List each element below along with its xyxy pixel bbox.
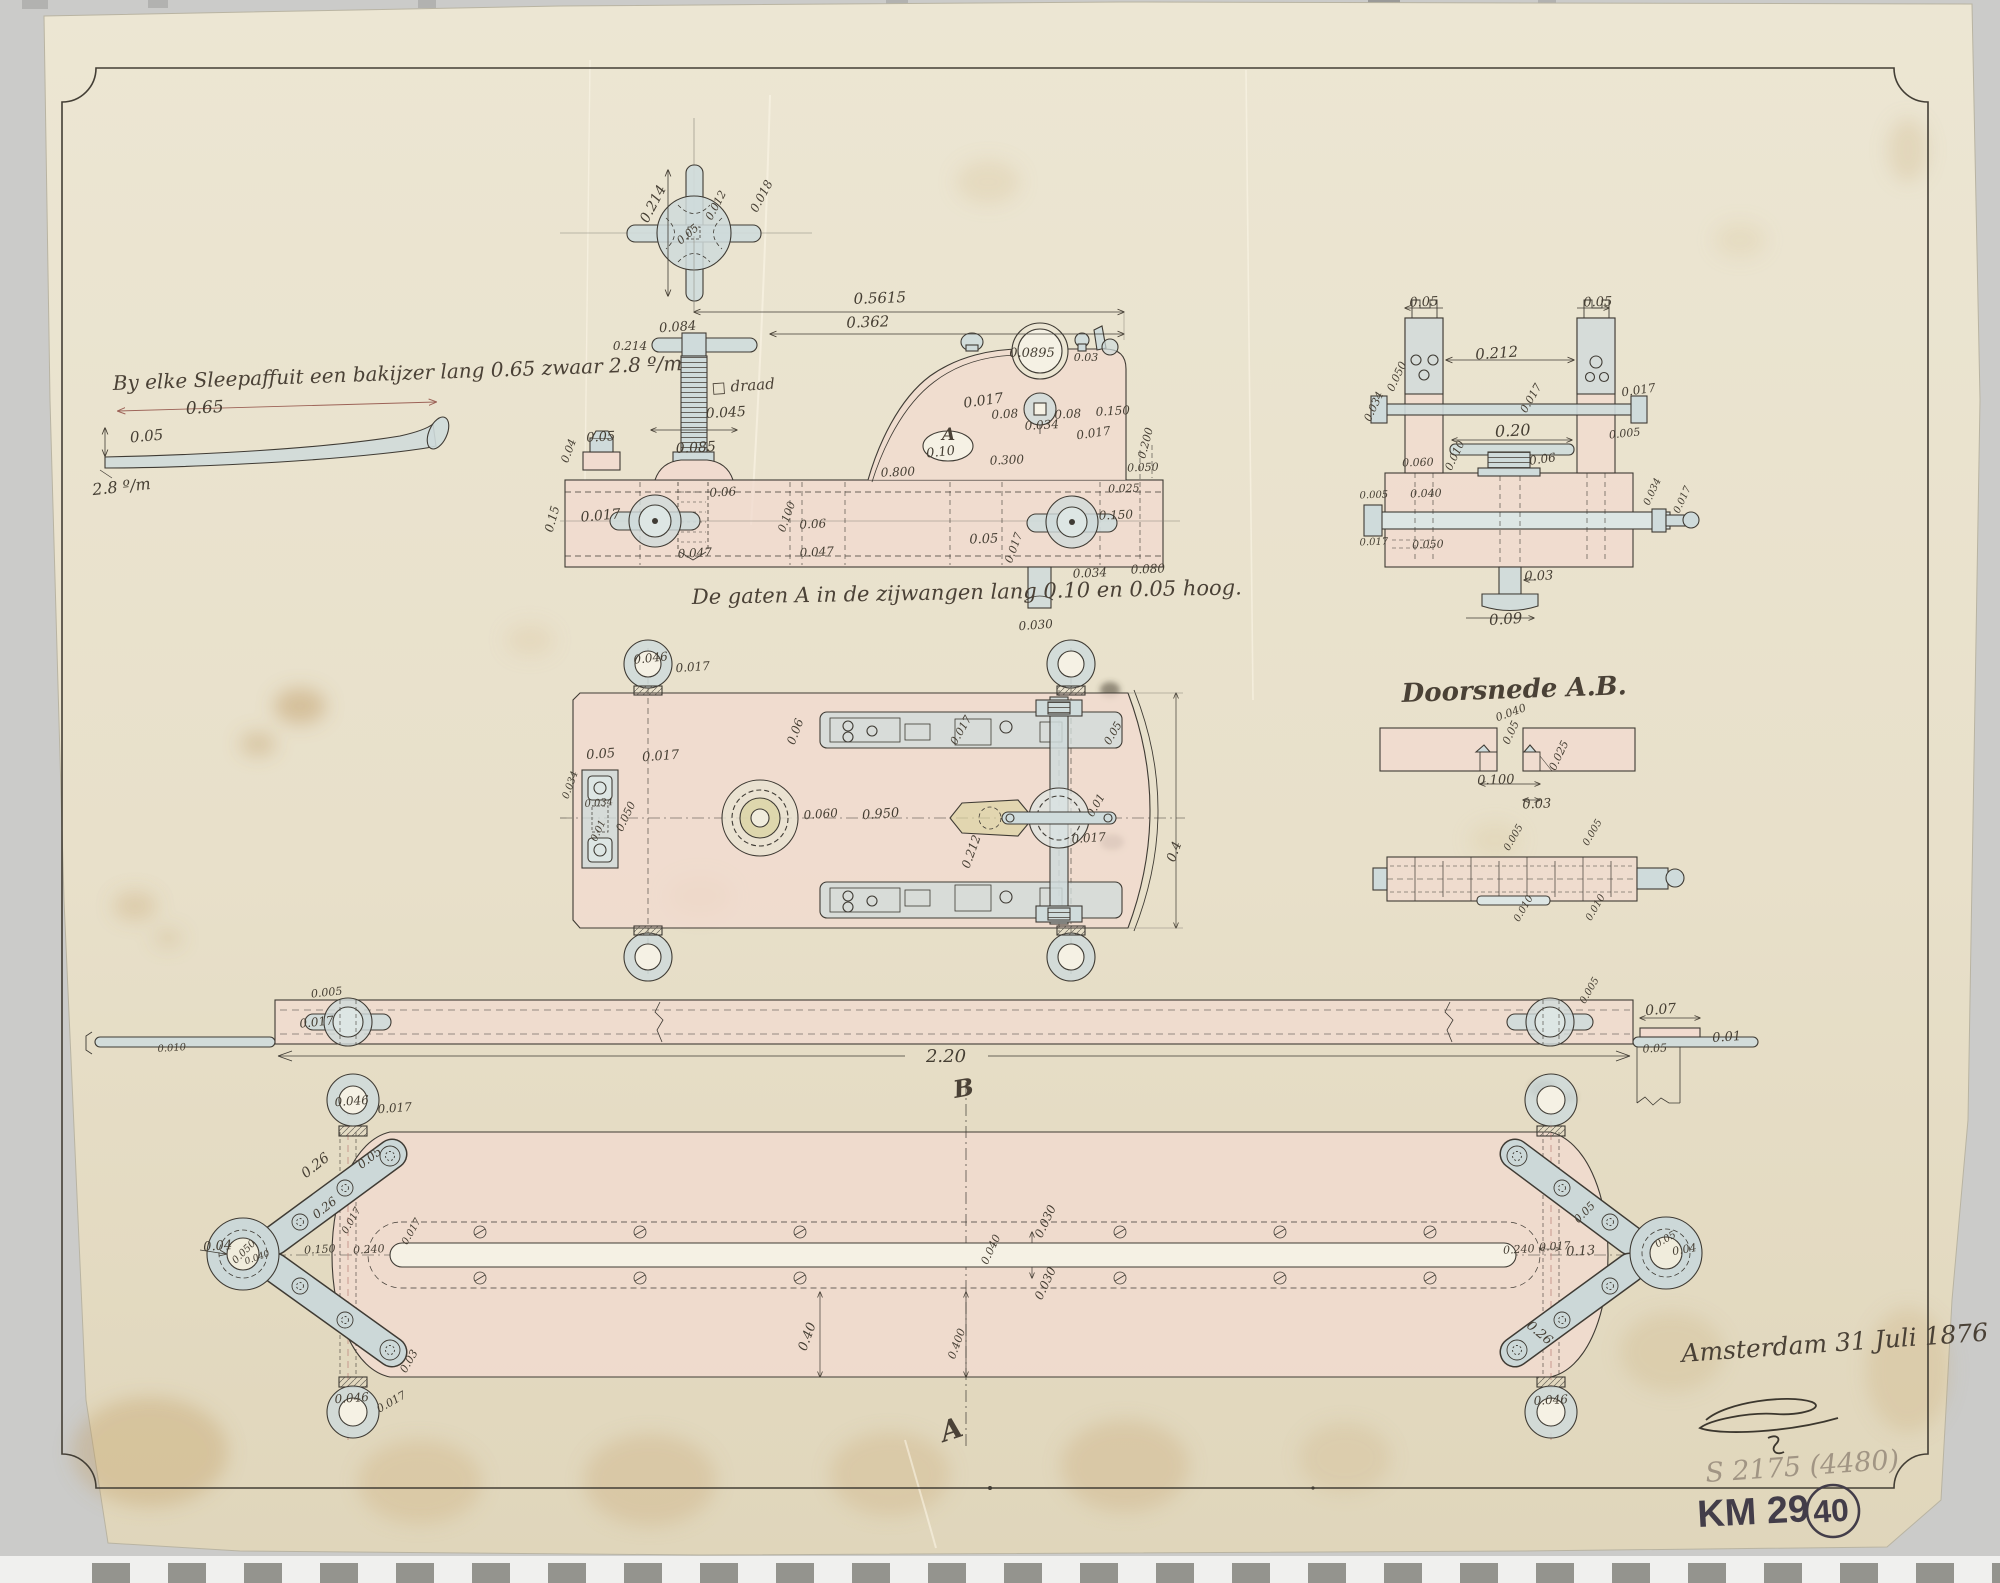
dimension-label: 0.034 [1072,565,1107,580]
dimension-label: 0.04 [203,1238,233,1255]
dimension-label: 0.080 [1130,561,1165,576]
dimension-label: 0.050 [1127,460,1159,474]
dimension-label: 0.03 [1522,797,1551,813]
dimension-label: 0.05 [586,429,616,445]
dimension-label: 0.05 [586,746,616,763]
dimension-label: 0.046 [334,1093,370,1109]
dimension-label: 0.06 [799,516,827,531]
dimension-label: 0.017 [1071,830,1107,846]
hole-label-a: A [940,425,955,445]
dimension-label: 0.05 [969,532,998,548]
dimension-label: 0.03 [1074,351,1099,364]
dimension-label: 0.10 [925,444,955,462]
dimension-label: 0.03 [1524,569,1553,585]
dimension-label: 0.07 [1645,1001,1677,1019]
photo-scale-bar [0,1556,2000,1583]
dimension-label: 0.240 [1503,1242,1535,1257]
dimension-label: 0.05 [129,426,164,447]
dimension-label: 0.030 [1018,617,1054,633]
dimension-label: 0.150 [304,1242,336,1257]
dimension-label: 0.025 [1108,481,1140,495]
dimension-label: 0.01 [1712,1029,1742,1046]
dimension-label: 0.240 [353,1242,385,1257]
dimension-label: 0.034 [584,797,613,810]
dimension-label: 0.060 [803,806,839,822]
dimension-label: 0.047 [799,544,834,560]
dimension-label: 0.047 [677,545,712,561]
dimension-label: 0.20 [1494,420,1531,441]
dimension-label: 0.150 [1095,403,1130,419]
dimension-label: 0.150 [1098,507,1133,522]
dimension-label: 0.017 [1359,536,1389,548]
dimension-label: 0.017 [642,748,681,766]
dimension-label: 0.65 [185,397,224,419]
dimension-label: 0.13 [1566,1243,1596,1259]
dimension-label: 0.017 [377,1100,413,1116]
drawing-canvas: By elke Sleepaffuit een bakijzer lang 0.… [0,0,2000,1583]
dimension-label: 0.060 [1402,455,1434,469]
dimension-label: 0.050 [1412,537,1444,551]
dimension-label: 0.05 [1409,295,1438,311]
dimension-label: 0.0895 [1009,346,1055,361]
dimension-label: 0.05 [1642,1041,1667,1055]
dimension-label: 0.214 [613,339,647,353]
dimension-label: 0.09 [1488,609,1523,629]
dimension-label: 0.017 [675,659,711,675]
dimension-label: 0.212 [1475,343,1519,364]
dimension-label: 2.20 [925,1046,966,1067]
dimension-label: 0.08 [991,406,1019,421]
dimension-label: 0.5615 [853,288,906,308]
dimension-label: 0.362 [846,312,890,331]
dimension-label: 0.046 [1533,1392,1568,1408]
dimension-label: 0.046 [334,1390,370,1406]
dimension-label: 0.040 [1410,486,1442,500]
dimension-label: 0.950 [862,806,900,824]
dimension-label: 0.010 [157,1042,187,1055]
dimension-label: 0.005 [1359,490,1388,502]
archive-code: KM 29 [1696,1488,1810,1536]
sheet-number: 40 [1812,1492,1850,1530]
dimension-label: 0.05 [1583,295,1612,311]
dimension-label: 0.100 [1477,772,1515,788]
dimension-label: 0.045 [705,404,746,422]
dimension-label: 0.084 [659,319,697,337]
photographed-drawing-sheet: { "document": { "note_topleft": "By elke… [0,0,2000,1583]
dimension-label: 0.800 [880,464,915,479]
dimension-label: 0.300 [989,452,1024,467]
dimension-label: 0.06 [709,484,737,499]
dimension-label: 0.085 [675,439,716,457]
dimension-label: 0.08 [1054,406,1082,421]
